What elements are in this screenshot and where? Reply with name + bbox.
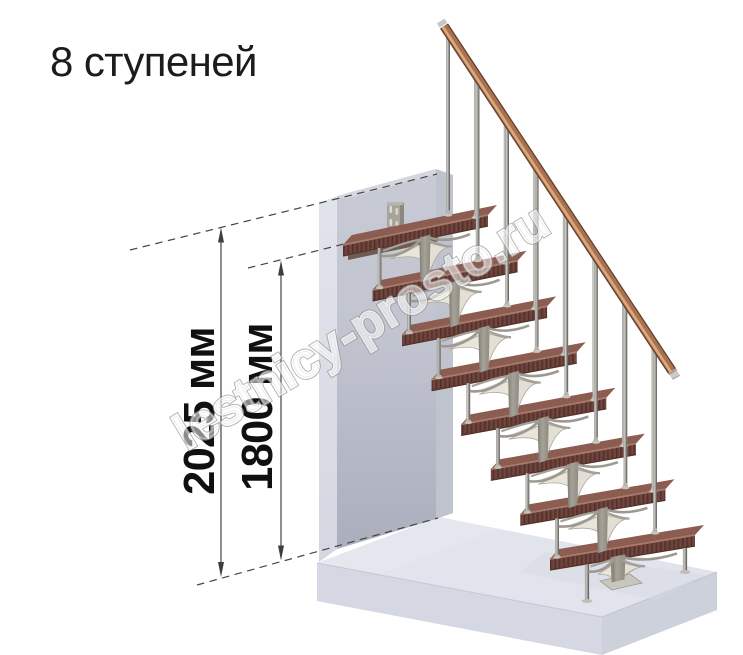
svg-text:8 ступеней: 8 ступеней	[50, 38, 257, 85]
